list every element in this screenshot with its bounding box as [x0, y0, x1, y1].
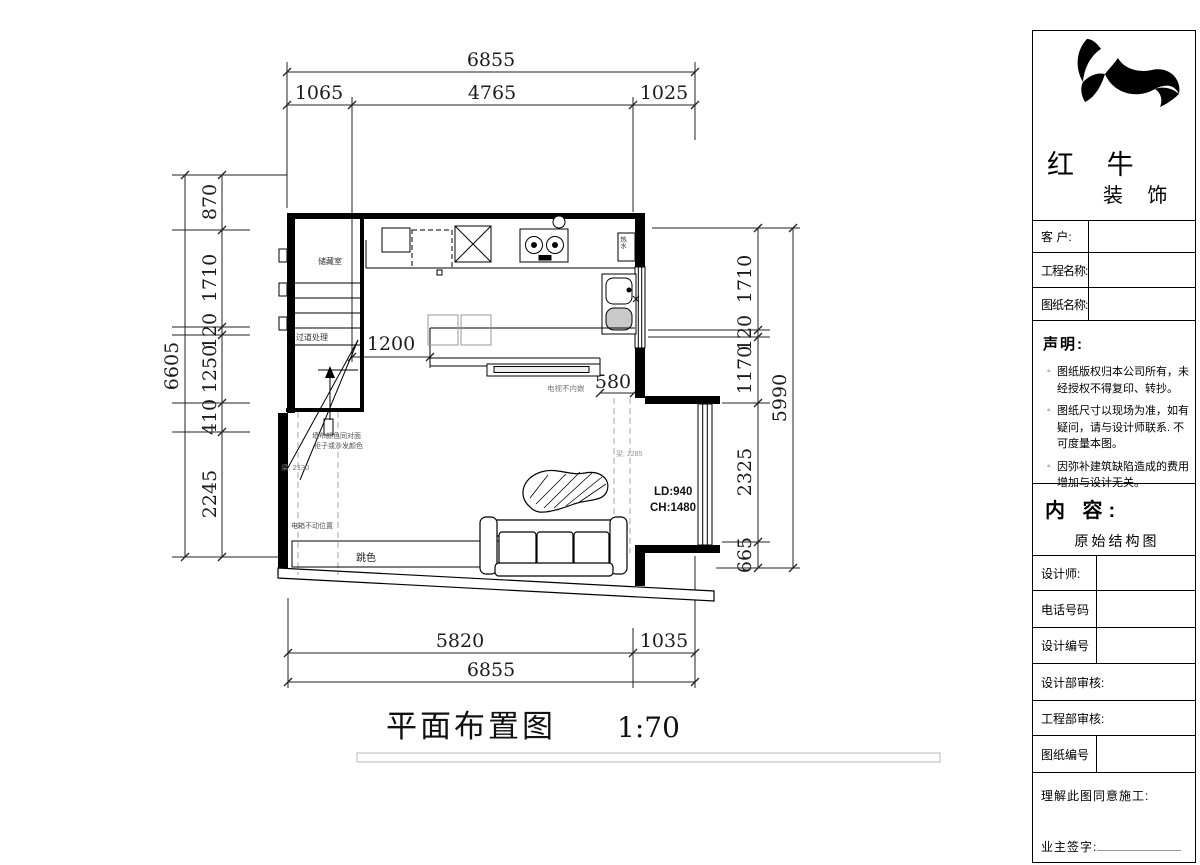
window-bay: [698, 404, 712, 545]
dim-top-2: 4765: [468, 82, 516, 104]
dim-right-1: 1710: [734, 255, 756, 303]
dim-right-4: 2325: [734, 448, 756, 496]
statement-block: 声明: 图纸版权归本公司所有，未经授权不得复印、转抄。 图纸尺寸以现场为准，如有…: [1033, 320, 1195, 483]
dim-left-5: 410: [199, 399, 221, 435]
storage-label: 储藏室: [318, 256, 342, 266]
tv-note-label: 电视不内嵌: [547, 383, 585, 393]
row-design-dept: 设计部审核:: [1033, 663, 1195, 700]
row-customer: 客 户:: [1033, 220, 1195, 252]
dim-left-4: 1250: [199, 345, 221, 393]
design-dept-label: 设计部审核:: [1033, 664, 1104, 700]
sofa: [480, 517, 627, 576]
corridor-label: 过道处理: [296, 332, 328, 342]
row-drawing-name: 图纸名称:: [1033, 287, 1195, 320]
plan-scale: 1:70: [617, 711, 680, 744]
project-name-value-cell: [1089, 253, 1195, 287]
kitchen-sink: [602, 274, 639, 334]
drawing-sheet: 6855 1065 4765 1025 6605 870 1710 120 12…: [0, 0, 1200, 865]
dim-right-2: 120: [734, 315, 756, 351]
accent-note-label: 跳色: [356, 551, 376, 564]
statement-item: 因弥补建筑缺陷造成的费用增加与设计无关。: [1047, 459, 1189, 492]
customer-value-cell: [1089, 221, 1195, 252]
signature-block: 理解此图同意施工: 业主签字:: [1033, 772, 1195, 861]
dim-left-3: 120: [199, 313, 221, 349]
staircase: [284, 283, 360, 480]
customer-label: 客 户:: [1033, 221, 1089, 252]
dining-squares: [428, 315, 491, 345]
drawing-no-value-cell: [1097, 736, 1195, 772]
owner-sign-label: 业主签字:: [1041, 838, 1189, 855]
dim-bottom-1: 5820: [436, 630, 484, 652]
dim-right-3: 1170: [734, 346, 756, 394]
design-no-label: 设计编号: [1033, 628, 1097, 663]
statement-list: 图纸版权归本公司所有，未经授权不得复印、转抄。 图纸尺寸以现场为准，如有疑问，请…: [1043, 364, 1189, 492]
floor-plan-canvas: 6855 1065 4765 1025 6605 870 1710 120 12…: [0, 0, 1032, 865]
owner-sign-text: 业主签字:: [1041, 840, 1097, 854]
design-no-value-cell: [1097, 628, 1195, 663]
dim-corridor: 1200: [367, 333, 415, 355]
bull-logo-icon: [1041, 35, 1191, 140]
brand-name-primary: 红 牛: [1047, 143, 1146, 182]
coffee-table: [523, 470, 608, 512]
dim-left-2: 1710: [199, 254, 221, 302]
content-value: 原始结构图: [1045, 531, 1189, 551]
dim-top-3: 1025: [640, 82, 688, 104]
dim-left-6: 2245: [199, 470, 221, 518]
window-ch-label: CH:1480: [650, 502, 696, 514]
phone-value-cell: [1097, 591, 1195, 627]
dim-bottom-2: 1035: [640, 630, 688, 652]
content-block: 内 容: 原始结构图: [1033, 483, 1195, 555]
agreement-label: 理解此图同意施工:: [1041, 787, 1189, 804]
row-designer: 设计师:: [1033, 555, 1195, 590]
wall-note-2: 柜子或沙发颜色: [314, 441, 363, 450]
kitchen-counter: [366, 226, 635, 275]
plan-title: 平面布置图: [386, 709, 556, 745]
title-underline-bar: [357, 753, 940, 762]
row-phone: 电话号码: [1033, 590, 1195, 627]
beam-left-label: 梁: 2130: [281, 463, 309, 472]
hood-duct: [553, 216, 565, 228]
dim-right-total: 5990: [769, 374, 791, 422]
fridge: [412, 230, 452, 268]
beam-right-label: 梁: 2285: [616, 449, 643, 458]
drawing-name-label: 图纸名称:: [1033, 288, 1089, 320]
statement-title: 声明:: [1043, 333, 1189, 354]
dim-left-1: 870: [199, 184, 221, 220]
phone-label: 电话号码: [1033, 591, 1097, 627]
wall-note-1: 墙布颜色同对面: [312, 431, 361, 440]
dim-top-1: 1065: [295, 82, 343, 104]
elec-note-label: 电箱不动位置: [291, 521, 333, 530]
row-project-name: 工程名称:: [1033, 252, 1195, 287]
tv-wall: [430, 358, 600, 376]
eng-dept-label: 工程部审核:: [1033, 701, 1104, 735]
designer-value-cell: [1097, 556, 1195, 590]
dim-bottom-total: 6855: [467, 659, 515, 681]
drawing-no-label: 图纸编号: [1033, 736, 1097, 772]
content-title: 内 容:: [1045, 494, 1189, 523]
row-eng-dept: 工程部审核:: [1033, 700, 1195, 735]
project-name-label: 工程名称:: [1033, 253, 1089, 287]
row-drawing-no: 图纸编号: [1033, 735, 1195, 772]
signature-line: [1097, 839, 1181, 851]
tv-screen: [494, 367, 589, 373]
statement-item: 图纸版权归本公司所有，未经授权不得复印、转抄。: [1047, 364, 1189, 397]
dim-right-5: 665: [734, 537, 756, 573]
brand-name-secondary: 装 饰: [1103, 179, 1176, 208]
company-logo: 红 牛 装 饰: [1033, 31, 1195, 220]
dim-left-total: 6605: [161, 342, 183, 390]
row-design-no: 设计编号: [1033, 627, 1195, 663]
title-block: 红 牛 装 饰 客 户: 工程名称: 图纸名称: 声明: 图纸版权归本公司所有，…: [1032, 30, 1196, 863]
window-ld-label: LD:940: [654, 486, 692, 498]
dim-top-total: 6855: [467, 49, 515, 71]
gas-stove: [520, 216, 568, 262]
statement-item: 图纸尺寸以现场为准，如有疑问，请与设计师联系. 不可度量本图。: [1047, 403, 1189, 453]
designer-label: 设计师:: [1033, 556, 1097, 590]
drawing-name-value-cell: [1089, 288, 1195, 320]
